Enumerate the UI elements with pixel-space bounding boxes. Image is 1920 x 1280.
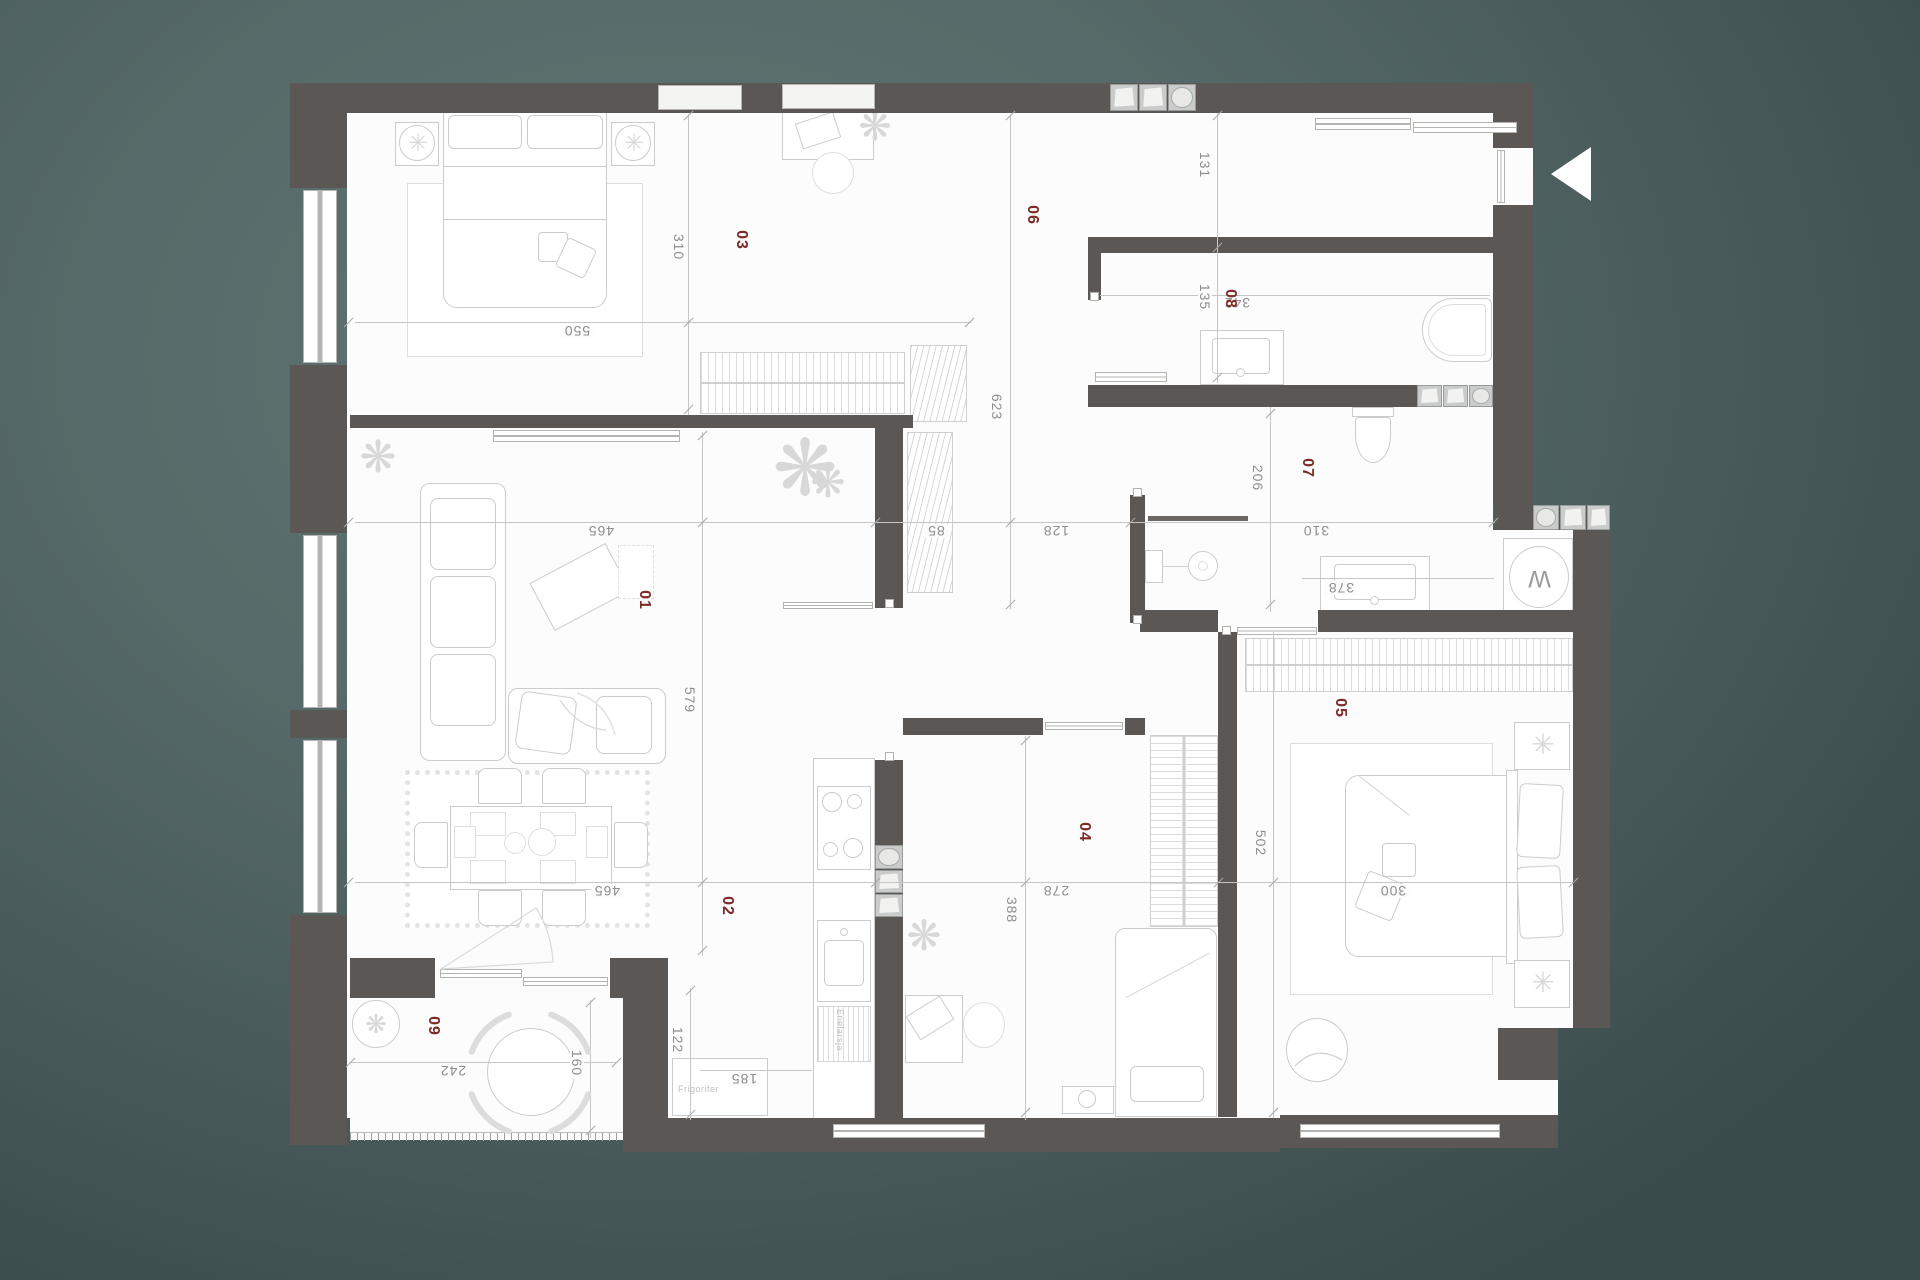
dim-line (1270, 407, 1271, 612)
window-block (1443, 385, 1468, 407)
wall-bedroom4-north-b (1125, 718, 1145, 735)
cushion (1382, 843, 1416, 877)
wall-cap (885, 752, 894, 761)
room-label-05: 05 (1331, 698, 1349, 718)
wall-cap (1133, 615, 1142, 624)
dim-label: 465 (591, 884, 623, 898)
pillow (1516, 865, 1564, 939)
sofa-cushion (596, 696, 652, 754)
dim-label: 185 (728, 1072, 760, 1086)
dim-line (1273, 632, 1274, 1118)
dim-label: 310 (672, 231, 686, 263)
entry-bench (1315, 118, 1411, 130)
pillow (1130, 1066, 1204, 1102)
wall-left-seg (290, 83, 347, 188)
shelf-corridor (907, 432, 953, 593)
dim-line (1302, 578, 1494, 579)
dishwasher-label: Enëlarsja (835, 1009, 845, 1051)
dining-chair (542, 890, 586, 926)
room-label-08: 08 (1221, 289, 1239, 309)
wardrobe-hanging (1245, 638, 1573, 692)
pillow (1516, 783, 1564, 859)
window-block (875, 894, 903, 917)
fridge-label: Frigorifer (678, 1084, 719, 1094)
dim-line (1025, 736, 1026, 1120)
dim-line (1100, 295, 1490, 296)
pane-icon (1142, 87, 1164, 108)
media-console (493, 430, 680, 442)
faucet-icon (1236, 368, 1245, 377)
burner-icon (822, 792, 842, 812)
window-block (1110, 84, 1138, 111)
entry-door-leaf (1497, 150, 1505, 203)
balcony-table (487, 1028, 575, 1116)
window (303, 190, 337, 363)
wardrobe-hanging (1150, 735, 1218, 927)
window-block (1139, 84, 1167, 111)
dim-label: 242 (437, 1064, 469, 1078)
room-label-09: 09 (424, 1016, 442, 1036)
wall-right-low (1573, 530, 1610, 1028)
sofa-cushion (430, 498, 496, 570)
dim-label: 128 (1040, 524, 1072, 538)
window-block-round (1533, 505, 1559, 530)
burner-icon (823, 842, 838, 857)
window-block-round (1168, 84, 1196, 111)
dim-line (1010, 115, 1011, 609)
dim-label: 550 (561, 324, 593, 338)
wardrobe-bedroom3 (700, 352, 905, 414)
wall-right-mid (1493, 205, 1533, 505)
lamp-icon (399, 125, 435, 161)
dim-label: 206 (1251, 462, 1265, 494)
pane-icon (1420, 388, 1439, 404)
door-threshold (783, 602, 873, 609)
pane-icon (1446, 388, 1465, 404)
headboard (1506, 770, 1518, 964)
wall-left-seg (290, 710, 347, 738)
dim-label: 388 (1005, 894, 1019, 926)
vent-dial-icon (1078, 1090, 1096, 1108)
wall-top (290, 83, 1533, 113)
round-pane-icon (878, 848, 900, 866)
entrance-arrow-icon (1551, 147, 1591, 201)
pane-icon (878, 897, 900, 914)
balcony-plant-pot (352, 1000, 400, 1048)
wall-cap (1090, 292, 1099, 301)
window (1300, 1124, 1500, 1138)
round-pane-icon (1472, 388, 1490, 404)
room-label-02: 02 (718, 896, 736, 916)
placemat (586, 826, 608, 858)
bath8-door (1095, 372, 1167, 382)
nightstand (1514, 722, 1570, 770)
wall-entry-bath8 (1088, 237, 1493, 253)
dining-chair (542, 768, 586, 804)
window (833, 1124, 985, 1138)
dim-label: 122 (671, 1024, 685, 1056)
dim-label: 579 (683, 684, 697, 716)
duct-shaft (658, 85, 742, 110)
bathtub-inner (1428, 304, 1486, 356)
bedroom4-door-threshold (1045, 722, 1123, 730)
faucet-icon (840, 928, 848, 936)
room-label-04: 04 (1075, 822, 1093, 842)
placemat (454, 826, 476, 858)
dim-line (688, 115, 689, 415)
round-pane-icon (1536, 508, 1556, 527)
wall-left-seg (290, 365, 347, 533)
burner-icon (847, 794, 862, 809)
dining-chair (414, 822, 448, 868)
window-block (1417, 385, 1442, 407)
wall-bath7-south-b (1318, 610, 1610, 632)
pane-icon (1590, 508, 1607, 527)
plate-icon (528, 828, 556, 856)
wall-balcony-a (350, 958, 435, 998)
burner-icon (843, 838, 863, 858)
dim-label: 465 (585, 524, 617, 538)
bed-double (1345, 775, 1515, 957)
placemat (540, 860, 576, 884)
desk-chair (812, 152, 854, 194)
shower-valve (1145, 550, 1163, 583)
round-chair (1286, 1018, 1348, 1082)
dining-chair (478, 768, 522, 804)
dim-label: 300 (1377, 884, 1409, 898)
window-block (1560, 505, 1586, 530)
entry-bench (1413, 122, 1517, 133)
sofa-cushion (430, 576, 496, 648)
dim-line (702, 432, 703, 956)
sofa-cushion (514, 690, 578, 755)
wall-balcony-b (610, 958, 668, 998)
dim-line (355, 322, 971, 323)
dim-label: 623 (990, 391, 1004, 423)
wall-step-bottom-right (1498, 1028, 1558, 1080)
nightstand (1514, 960, 1570, 1008)
wall-bath8-south (1088, 385, 1417, 407)
sofa-cushion (430, 654, 496, 726)
wall-cap (885, 599, 894, 608)
wall-bedroom3-south (350, 415, 913, 428)
room-label-07: 07 (1298, 458, 1316, 478)
sliding-door-panel (523, 977, 608, 986)
dim-label: 378 (1325, 581, 1357, 595)
sink-basin (824, 940, 864, 986)
placemat (470, 860, 506, 884)
dim-label: 310 (1300, 524, 1332, 538)
wall-cap (1222, 626, 1231, 635)
floor-plan: ✳ ✳ ❋ ❋ ❋ (0, 0, 1920, 1280)
pillow (527, 115, 603, 149)
dim-label: 502 (1254, 827, 1268, 859)
desk-chair (963, 1002, 1005, 1048)
wall-left-seg (290, 915, 347, 1145)
wall-bath7-south-a (1140, 610, 1218, 632)
dining-chair (478, 890, 522, 926)
duct-shaft (782, 84, 875, 109)
pane-icon (1563, 508, 1583, 527)
dim-label: 85 (924, 524, 948, 538)
room-label-03: 03 (732, 230, 750, 250)
window-block-round (875, 845, 903, 869)
balcony-railing (350, 1132, 623, 1141)
wall-bath7-west (1130, 495, 1145, 623)
dim-line (590, 1000, 591, 1138)
dim-label: 131 (1198, 149, 1212, 181)
dining-chair (614, 822, 648, 868)
shower-head-center (1198, 561, 1208, 571)
wall-balcony-kitchen (623, 998, 668, 1152)
window-block (1587, 505, 1610, 530)
toilet-tank (1352, 407, 1394, 417)
bedroom5-door-threshold (1237, 627, 1317, 635)
round-pane-icon (1171, 87, 1193, 108)
faucet-icon (1370, 596, 1379, 605)
washer-label: W (1524, 571, 1554, 585)
wall-bedroom4-north-a (903, 718, 1043, 735)
dim-label: 135 (1198, 281, 1212, 313)
shower-arm (1163, 566, 1190, 567)
dim-line (690, 988, 691, 1120)
dim-label: 278 (1040, 884, 1072, 898)
wall-kitchen-east (875, 760, 903, 1120)
window-block-round (1469, 385, 1493, 407)
wall-bedroom4-5 (1218, 632, 1237, 1117)
closet-corridor (910, 345, 967, 422)
bath7-door-leaf (1148, 516, 1248, 521)
pillow (448, 115, 522, 149)
window (303, 740, 337, 913)
blanket (443, 166, 607, 220)
wall-cap (1133, 488, 1142, 497)
lamp-icon (615, 125, 651, 161)
wall-right-top (1493, 83, 1533, 148)
dim-label: 160 (570, 1047, 584, 1079)
room-label-06: 06 (1023, 205, 1041, 225)
room-label-01: 01 (635, 590, 653, 610)
sliding-door-panel (440, 969, 522, 978)
window (303, 535, 337, 708)
pane-icon (1113, 87, 1135, 108)
plate-icon (504, 832, 526, 854)
